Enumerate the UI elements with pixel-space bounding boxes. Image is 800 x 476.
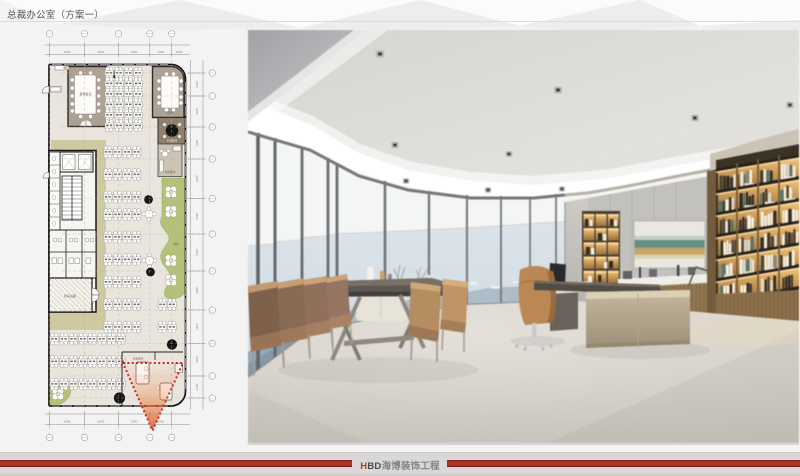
svg-text:前台接待: 前台接待	[133, 357, 144, 361]
svg-text:水吧操作: 水吧操作	[165, 170, 176, 174]
svg-text:3300: 3300	[195, 323, 199, 330]
svg-text:机房设备: 机房设备	[64, 293, 76, 298]
svg-text:3050: 3050	[64, 50, 71, 54]
svg-text:3700: 3700	[195, 249, 199, 256]
svg-text:贵宾会议: 贵宾会议	[79, 91, 91, 96]
svg-text:绿化: 绿化	[173, 242, 179, 246]
svg-text:1800: 1800	[176, 50, 183, 54]
svg-text:3550: 3550	[195, 213, 199, 220]
svg-text:3100: 3100	[195, 108, 199, 115]
svg-text:3250: 3250	[195, 356, 199, 363]
svg-text:3900: 3900	[195, 287, 199, 294]
svg-text:6000: 6000	[98, 420, 105, 424]
svg-text:2200: 2200	[195, 383, 199, 390]
svg-text:2600: 2600	[158, 50, 165, 54]
svg-text:1200: 1200	[158, 420, 165, 424]
svg-text:公共接待: 公共接待	[167, 139, 178, 143]
svg-text:2300: 2300	[195, 81, 199, 88]
svg-text:4050: 4050	[98, 50, 105, 54]
svg-text:3200: 3200	[195, 139, 199, 146]
svg-text:4000: 4000	[195, 175, 199, 182]
svg-text:2450: 2450	[131, 420, 138, 424]
svg-text:6089: 6089	[64, 420, 71, 424]
svg-text:3000: 3000	[131, 50, 138, 54]
svg-text:洽谈区: 洽谈区	[166, 111, 174, 115]
